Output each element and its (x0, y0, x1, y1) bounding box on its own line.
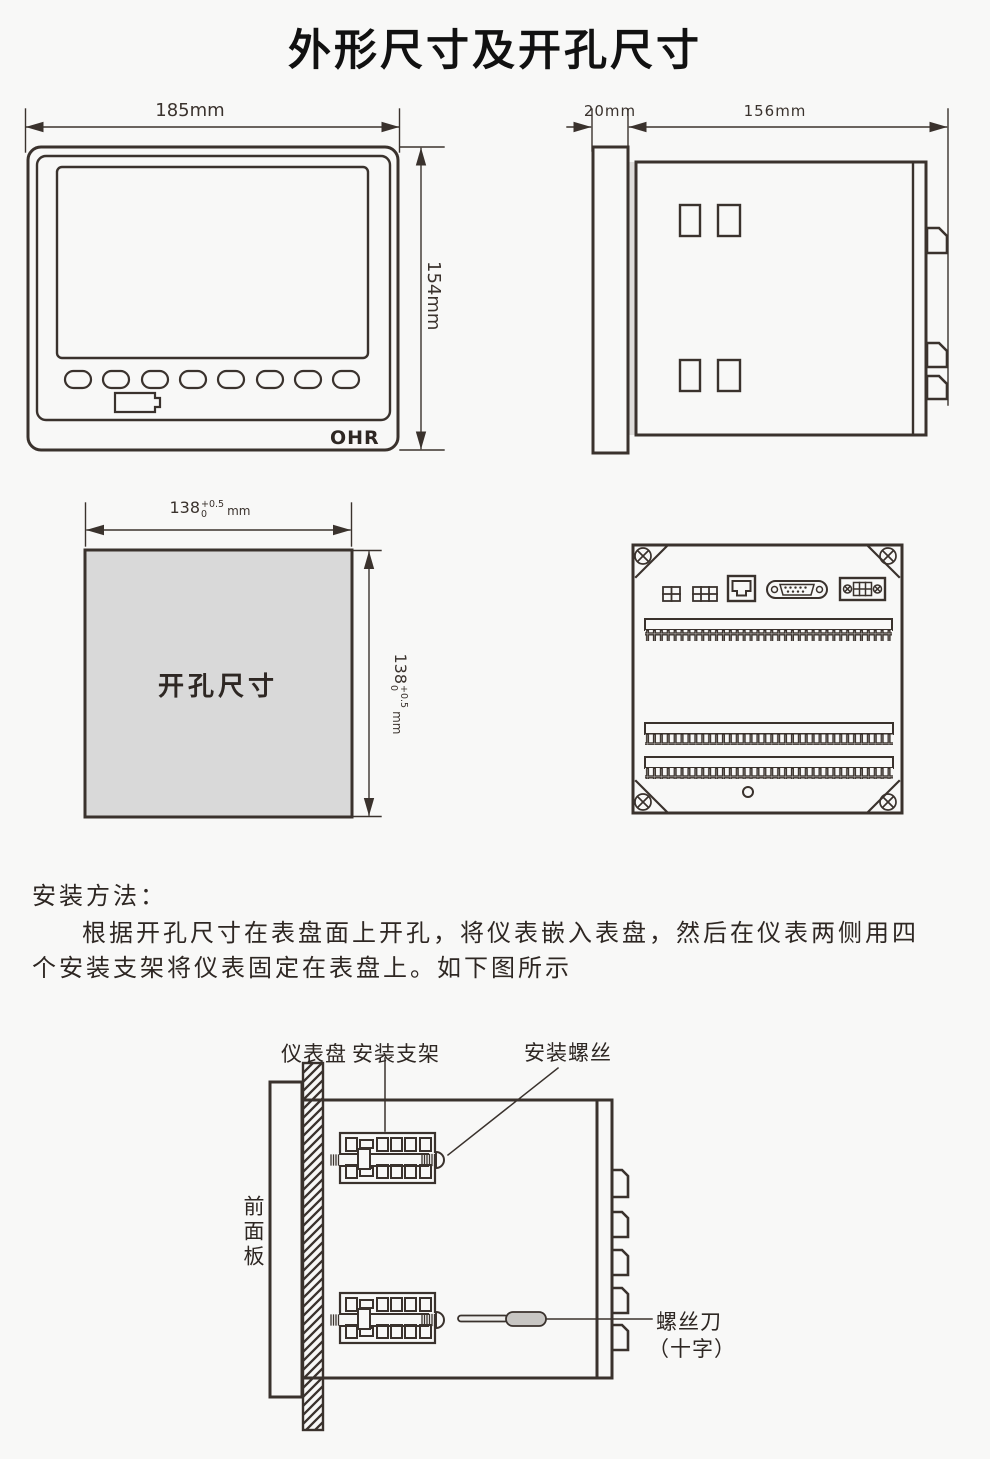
dim-tol-lower: 0 (201, 510, 224, 520)
install-drawing (230, 1056, 790, 1456)
dim-value: 138 (169, 499, 200, 517)
small-connector-3p (693, 587, 717, 601)
side-vent-slots (680, 205, 740, 391)
side-view-drawing (545, 95, 975, 465)
side-thickness-label: 20mm (570, 102, 650, 120)
install-heading: 安装方法： (32, 876, 167, 911)
page-title: 外形尺寸及开孔尺寸 (0, 16, 990, 78)
cutout-height-label: 138+0.50mm (389, 650, 409, 738)
front-bezel (28, 147, 398, 450)
install-front-panel (270, 1082, 302, 1397)
front-height-label: 154mm (423, 261, 444, 343)
usb-port-icon (115, 393, 160, 412)
label-screwdriver: 螺丝刀 (656, 1306, 722, 1336)
label-bracket: 安装支架 (352, 1038, 440, 1068)
label-panel: 仪表盘 (281, 1038, 347, 1068)
mounting-bracket-top (329, 1133, 444, 1183)
dim-value: 138 (391, 653, 409, 684)
install-body (302, 1100, 612, 1378)
cutout-height-dimension (354, 551, 381, 817)
install-body-tabs (612, 1170, 628, 1350)
screwdriver-icon (458, 1312, 546, 1326)
front-buttons (65, 371, 359, 388)
rj45-port-icon (728, 576, 755, 601)
cutout-label: 开孔尺寸 (133, 666, 303, 703)
dim-tol-lower: 0 (389, 685, 399, 708)
rear-view-drawing (620, 535, 920, 825)
mounting-bracket-bottom (329, 1293, 444, 1343)
panel-wall-hatched (303, 1063, 323, 1430)
power-terminal-icon (840, 578, 885, 600)
small-connector-2p (663, 587, 680, 601)
install-paragraph-line2: 个安装支架将仪表固定在表盘上。如下图所示 (32, 948, 572, 983)
side-body (636, 162, 926, 435)
front-width-label: 185mm (130, 100, 250, 121)
dim-unit: mm (389, 711, 405, 734)
label-front-panel: 前面板 (238, 1195, 268, 1285)
terminal-strip-1 (645, 619, 892, 641)
dim-tol-upper: +0.5 (399, 685, 409, 708)
side-dimensions (567, 109, 948, 405)
screen (57, 167, 368, 358)
db9-serial-port-icon (767, 581, 827, 598)
cutout-width-label: 138+0.50mm (150, 499, 270, 519)
side-mounting-tabs (927, 228, 947, 399)
rear-hole (743, 787, 753, 797)
install-paragraph-line1: 根据开孔尺寸在表盘面上开孔，将仪表嵌入表盘，然后在仪表两侧用四 (82, 913, 919, 948)
front-view-drawing (10, 95, 460, 465)
label-screw: 安装螺丝 (524, 1037, 612, 1067)
manual-page: 外形尺寸及开孔尺寸 (0, 0, 990, 1459)
dim-unit: mm (227, 503, 250, 519)
terminal-strip-3 (645, 757, 893, 779)
label-screwdriver-type: （十字） (648, 1333, 736, 1363)
terminal-strip-2 (645, 723, 893, 745)
side-depth-label: 156mm (715, 102, 835, 120)
side-bezel (593, 147, 628, 453)
brand-logo: OHR (330, 427, 378, 449)
